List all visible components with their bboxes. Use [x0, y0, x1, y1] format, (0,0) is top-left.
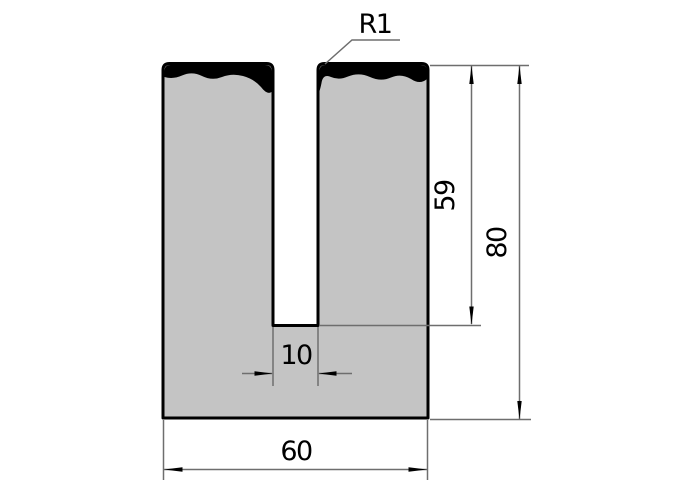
arrowhead-80-top-icon [517, 66, 521, 85]
radius-label: R1 [359, 9, 392, 40]
radius-leader-line [325, 40, 400, 64]
technical-drawing-canvas: R1 59 80 10 60 [0, 0, 680, 490]
arrowhead-80-bottom-icon [517, 401, 521, 420]
dimension-total-width: 60 [164, 420, 428, 480]
arrowhead-59-top-icon [469, 66, 473, 85]
arrowhead-60-right-icon [409, 467, 428, 471]
total-height-label: 80 [482, 227, 513, 259]
radius-callout: R1 [325, 9, 400, 64]
arrowhead-60-left-icon [164, 467, 183, 471]
arrowhead-59-bottom-icon [469, 307, 473, 326]
slot-depth-label: 59 [430, 180, 461, 212]
slot-width-label: 10 [280, 340, 312, 371]
total-width-label: 60 [280, 436, 312, 467]
dimension-total-height: 80 [430, 66, 531, 420]
